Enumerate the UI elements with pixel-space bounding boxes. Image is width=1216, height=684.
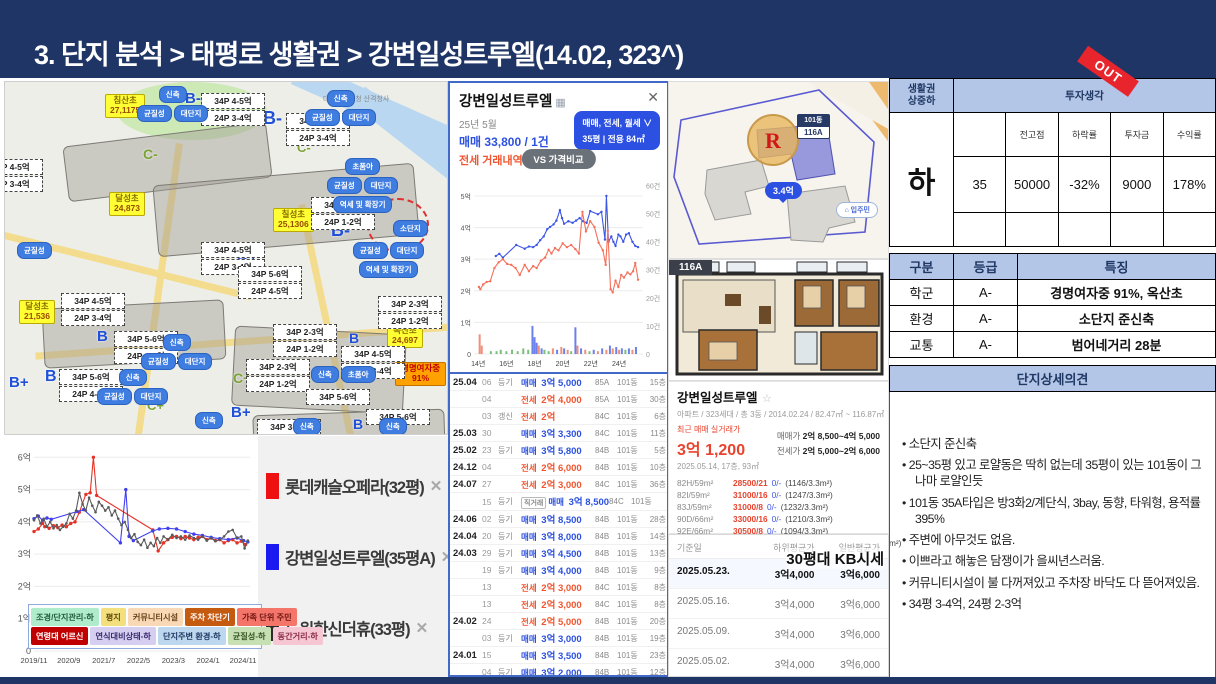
sale-range-value: 2억 8,500~4억 5,000 [803, 431, 880, 441]
zone-grade-letter: B [45, 368, 57, 386]
txn-day: 04 [482, 462, 498, 472]
jeonse-range-value: 2억 5,000~2억 6,000 [803, 446, 880, 456]
txn-badge: 등기 [498, 514, 521, 525]
txn-floor: 36층 [644, 479, 666, 490]
complex-tag-pill[interactable]: 균질성 [353, 242, 388, 259]
txn-day: 19 [482, 565, 498, 575]
txn-day: 30 [482, 428, 498, 438]
txn-type: 매매 [521, 515, 537, 525]
txn-price: 매매 3억 5,000 [521, 375, 595, 389]
school-value: 21,536 [24, 312, 50, 322]
svg-text:40건: 40건 [646, 238, 660, 247]
opinion-bullet: 34평 3-4억, 24평 2-3억 [902, 596, 1205, 612]
kb-date: 2025.05.23. [677, 566, 749, 581]
floor-plan: 116A [668, 259, 889, 381]
price-range-line: 34P 5-6억 [306, 389, 370, 405]
price-range-box: 34P 4-5억24P 3-4억 [4, 159, 43, 193]
txn-floor: 11층 [644, 428, 666, 439]
grade-column-header: 특징 [1018, 254, 1216, 280]
svg-text:2억: 2억 [461, 288, 471, 296]
txn-month: 24.03 [453, 548, 482, 559]
transaction-row[interactable]: 15등기직거래매매 3억 8,50084C101동7층 [450, 493, 669, 511]
price-app-panel: 강변일성트루엘▦ ✕ 25년 5월 매매 33,800 / 1건 전세 거래내역… [448, 81, 669, 677]
txn-building: 101동 [617, 428, 644, 439]
type-jeonse-price: 0/- [772, 489, 782, 501]
legend-label: 롯데캐슬오페라(32평) [285, 474, 424, 498]
complex-tag-pill[interactable]: 신축 [195, 412, 223, 429]
price-range-line: 24P 3-4억 [201, 110, 265, 126]
svg-text:2019/11: 2019/11 [21, 656, 48, 665]
complex-tag-pill[interactable]: 신축 [163, 334, 191, 351]
recent-trade-label: 최근 매매 실거래가 [677, 424, 759, 435]
home-icon: ⌂ [844, 207, 848, 214]
invest-empty-cell [1111, 213, 1163, 247]
txn-area-type: 84B [595, 634, 617, 643]
txn-type: 매매 [521, 549, 537, 559]
type-sale-price: 33000/16 [733, 513, 768, 525]
txn-price: 매매 3억 5,800 [521, 443, 595, 457]
price-history-chart: 01억2억3억4억5억010건20건30건40건50건60건14년16년18년2… [450, 169, 669, 372]
grade-row: 교통A-범어네거리 28분 [890, 332, 1216, 358]
price-range-line: 34P 4-5억 [341, 346, 405, 362]
txn-day: 06 [482, 377, 498, 387]
txn-badge: 갱신 [498, 411, 521, 422]
txn-type: 전세 [521, 583, 537, 593]
invest-empty-cell [1058, 213, 1110, 247]
tag-row: 신축 [305, 90, 376, 107]
txn-type: 매매 [521, 429, 537, 439]
complex-site-map: R 101동 116A 3.4억 ⌂ 입주민 [668, 81, 889, 259]
price-range-line: 24P 1-2억 [311, 214, 375, 230]
txn-building: 101동 [631, 496, 658, 507]
transaction-row[interactable]: 13전세 2억 3,00084C101동8층 [450, 596, 669, 613]
transaction-row[interactable]: 25.0406등기매매 3억 5,00085A101동15층 [450, 374, 669, 391]
transaction-row[interactable]: 03갱신전세 2억84C101동6층 [450, 408, 669, 425]
txn-price: 매매 3억 8,000 [521, 529, 595, 543]
type-jeonse-price: 0/- [772, 513, 782, 525]
complex-tag-pill[interactable]: 대단지 [390, 242, 425, 259]
tag-row: 신축 [293, 418, 321, 435]
attribute-tag: 균질성-하 [228, 627, 271, 645]
txn-day: 13 [482, 599, 498, 609]
txn-price: 직거래매매 3억 8,500 [521, 494, 609, 509]
invest-value: 9000 [1111, 157, 1163, 213]
txn-area-type: 84B [595, 515, 617, 524]
complex-tag-pill[interactable]: 역세 및 확장기 [333, 196, 393, 213]
txn-type: 전세 [521, 395, 537, 405]
kb-row: 2025.05.09.3억4,0003억6,000 [669, 619, 888, 649]
recent-trade-detail: 2025.05.14, 17층, 93㎡ [677, 461, 759, 472]
txn-badge: 등기 [498, 667, 521, 676]
txn-building: 101동 [617, 633, 644, 644]
price-range-line: 24P 1-2억 [273, 341, 337, 357]
txn-area-type: 84C [595, 429, 617, 438]
txn-type: 전세 [521, 463, 537, 473]
kb-row: 2025.05.16.3억4,0003억6,000 [669, 589, 888, 619]
type-label: 116A [797, 126, 830, 139]
svg-text:2020/9: 2020/9 [57, 656, 80, 665]
opinion-bullet: 101동 35A타입은 방3화2/계단식, 3bay, 동향, 타워형, 용적률… [902, 495, 1205, 527]
price-range-box: 34P 4-5억24P 3-4억 [61, 293, 125, 327]
transaction-row[interactable]: 24.0224전세 2억 5,00084B101동20층 [450, 613, 669, 630]
grade-feature: 범어네거리 28분 [1018, 332, 1216, 358]
complex-tag-group: 초품아균질성대단지역세 및 확장기 [327, 158, 398, 215]
txn-day: 27 [482, 479, 498, 489]
invest-col-header [954, 113, 1006, 157]
tag-row: 연령대 어르신연식대비상태-하단지주변 환경-하균질성-하동간거리-하 [31, 627, 259, 645]
txn-floor: 19층 [644, 633, 666, 644]
attribute-tag: 단지주변 환경-하 [158, 627, 226, 645]
svg-text:20년: 20년 [556, 359, 570, 368]
type-name: 90D/66m² [677, 513, 729, 525]
txn-floor: 8층 [644, 599, 666, 610]
price-range-box: 34P 4-5억24P 3-4억 [201, 93, 265, 127]
txn-price: 전세 2억 6,000 [521, 460, 595, 474]
txn-day: 03 [482, 411, 498, 421]
title-bar: 3. 단지 분석 > 태평로 생활권 > 강변일성트루엘(14.02, 323^… [0, 0, 1216, 78]
txn-type: 전세 [521, 412, 537, 422]
invest-empty-cell [954, 213, 1006, 247]
remove-series-icon[interactable]: ✕ [416, 619, 429, 637]
complex-tag-pill[interactable]: 소단지 [393, 220, 428, 237]
opinion-bullet: 커뮤니티시설이 불 다꺼져있고 주차장 바닥도 다 뜯어져있음. [902, 575, 1205, 591]
grade-feature: 경명여자중 91%, 옥산초 [1018, 280, 1216, 306]
tag-row: 신축초품아 [311, 366, 376, 383]
complex-tag-pill[interactable]: 균질성 [141, 353, 176, 370]
complex-title: 강변일성트루엘 [459, 94, 552, 110]
txn-month: 24.04 [453, 531, 482, 542]
txn-type: 매매 [521, 532, 537, 542]
svg-text:4억: 4억 [18, 516, 31, 527]
kb-row: 2025.05.02.3억4,0003억6,000 [669, 649, 888, 679]
txn-building: 101동 [617, 650, 644, 661]
svg-text:2억: 2억 [18, 580, 31, 591]
transaction-row[interactable]: 03등기매매 3억 3,00084B101동19층 [450, 630, 669, 647]
price-range-line: 24P 1-2억 [378, 313, 442, 329]
invest-col-header: 전고점 [1006, 113, 1058, 157]
price-range-line: 34P 2-3억 [378, 296, 442, 312]
invest-col-header: 투자금 [1111, 113, 1163, 157]
txn-day: 15 [482, 497, 498, 507]
txn-floor: 5층 [644, 445, 666, 456]
complex-tag-pill[interactable]: 균질성 [305, 109, 340, 126]
transaction-row[interactable]: 25.0330매매 3억 3,30084C101동11층 [450, 425, 669, 442]
complex-tag-pill[interactable]: 대단지 [174, 105, 209, 122]
area-map: 침산초27,1175달성초24,873칠성초25,1306달성초21,536옥산… [4, 81, 448, 435]
transaction-row[interactable]: 24.0602등기매매 3억 8,50084B101동28층 [450, 511, 669, 528]
kb-date: 2025.05.02. [677, 656, 749, 671]
txn-badge: 등기 [498, 531, 521, 542]
invest-col-header: 하락률 [1058, 113, 1110, 157]
school-price-marker[interactable]: 달성초24,873 [109, 192, 145, 216]
txn-price: 전세 2억 3,000 [521, 580, 595, 594]
compare-chart: 01억2억3억4억5억6억2019/112020/92021/72022/520… [4, 436, 258, 677]
star-icon[interactable]: ☆ [762, 393, 772, 405]
school-value: 27,1175 [110, 106, 140, 116]
complex-tag-group: 신축 [293, 418, 321, 435]
price-range-box: 34P 5-6억24P 4-5억 [238, 266, 302, 300]
txn-type: 매매 [521, 651, 537, 661]
opinion-box: 소단지 준신축25~35평 있고 로얄동은 딱히 없는데 35평이 있는 101… [889, 392, 1216, 678]
resident-pill: ⌂ 입주민 [836, 202, 878, 218]
legend-swatch [266, 544, 279, 570]
complex-tag-pill[interactable]: 신축 [379, 418, 407, 435]
txn-area-type: 85A [595, 378, 617, 387]
complex-tag-pill[interactable]: 역세 및 확장기 [359, 261, 419, 278]
txn-price: 매매 3억 4,500 [521, 546, 595, 560]
svg-text:3억: 3억 [18, 548, 31, 559]
floor-plan-drawing [669, 260, 889, 381]
svg-text:30건: 30건 [646, 266, 660, 275]
txn-day: 04 [482, 667, 498, 675]
complex-tag-pill[interactable]: 초품아 [345, 158, 380, 175]
txn-building: 101동 [617, 445, 644, 456]
complex-tag-pill[interactable]: 신축 [293, 418, 321, 435]
txn-building: 101동 [617, 531, 644, 542]
listing-info: 강변일성트루엘 ☆ 아파트 / 323세대 / 총 3동 / 2014.02.2… [668, 381, 889, 534]
txn-day: 04 [482, 394, 498, 404]
zone-grade-letter: B- [263, 108, 282, 129]
zone-grade-letter: B+ [231, 404, 251, 421]
price-range-line: 34P 4-5억 [201, 93, 265, 109]
complex-tag-pill[interactable]: 대단지 [342, 109, 377, 126]
transaction-row[interactable]: 13전세 2억 3,00084C101동8층 [450, 579, 669, 596]
svg-text:60건: 60건 [646, 181, 660, 190]
txn-price: 매매 3억 3,000 [521, 631, 595, 645]
transaction-row[interactable]: 24.0727전세 2억 3,00084C101동36층 [450, 476, 669, 493]
txn-badge: 등기 [498, 377, 521, 388]
txn-badge: 등기 [498, 548, 521, 559]
txn-month: 24.06 [453, 514, 482, 525]
price-range-line: 24P 4-5억 [238, 283, 302, 299]
school-value: 91% [401, 374, 440, 384]
attribute-tag: 주차 차단기 [185, 608, 235, 626]
type-price-row: 82I/59m²31000/160/-(1247/3.3m²) [677, 489, 880, 501]
price-range-box: 34P 5-6억 [306, 389, 370, 406]
svg-text:2023/3: 2023/3 [162, 656, 185, 665]
txn-area-type: 84B [595, 532, 617, 541]
txn-day: 02 [482, 514, 498, 524]
svg-text:2024/11: 2024/11 [230, 656, 257, 665]
filter-size: 35평 | 전용 84㎡ [582, 132, 652, 145]
txn-area-type: 84C [609, 497, 631, 506]
txn-day: 23 [482, 445, 498, 455]
svg-text:0: 0 [467, 352, 471, 359]
complex-tag-pill[interactable]: 균질성 [137, 105, 172, 122]
txn-month: 25.04 [453, 377, 482, 388]
transaction-row[interactable]: 24.0329등기매매 3억 4,50084B101동13층 [450, 545, 669, 562]
tag-row: 역세 및 확장기 [353, 261, 424, 278]
txn-month: 24.07 [453, 479, 482, 490]
tag-row: 조경/단지관리-하평지커뮤니티시설주차 차단기가족 단위 주민 [31, 608, 259, 626]
type-price-row: 83J/59m²31000/80/-(1232/3.3m²) [677, 501, 880, 513]
price-history-plot: 01억2억3억4억5억010건20건30건40건50건60건14년16년18년2… [450, 169, 669, 372]
svg-text:5억: 5억 [461, 193, 471, 201]
price-range-line: 34P 4-5억 [61, 293, 125, 309]
txn-building: 101동 [617, 667, 644, 676]
investment-header: 투자생각 [954, 79, 1216, 113]
txn-building: 101동 [617, 479, 644, 490]
invest-value: -32% [1058, 157, 1110, 213]
txn-type: 전세 [521, 480, 537, 490]
complex-tag-group: 신축 [195, 412, 223, 431]
complex-tag-group: 신축균질성대단지 [137, 86, 208, 124]
complex-tag-pill[interactable]: 대단지 [178, 353, 213, 370]
complex-tag-pill[interactable]: 균질성 [97, 388, 132, 405]
recent-trade: 최근 매매 실거래가 3억 1,200 2025.05.14, 17층, 93㎡ [677, 424, 759, 472]
svg-text:2024/1: 2024/1 [196, 656, 219, 665]
grade-row: 학군A-경명여자중 91%, 옥산초 [890, 280, 1216, 306]
txn-floor: 30층 [644, 394, 666, 405]
transaction-row[interactable]: 24.0115매매 3억 3,50084B101동23층 [450, 647, 669, 664]
transaction-row[interactable]: 19등기매매 3억 4,00084B101동9층 [450, 562, 669, 579]
remove-series-icon[interactable]: ✕ [430, 477, 443, 495]
txn-floor: 14층 [644, 531, 666, 542]
txn-price: 매매 3억 3,500 [521, 648, 595, 662]
page-title: 3. 단지 분석 > 태평로 생활권 > 강변일성트루엘(14.02, 323^… [34, 33, 683, 72]
complex-tag-pill[interactable]: 신축 [119, 369, 147, 386]
price-range-line: 34P 2-3억 [273, 324, 337, 340]
type-name: 82I/59m² [677, 489, 729, 501]
invest-empty-cell [1163, 213, 1215, 247]
tag-row: 균질성대단지 [353, 242, 424, 259]
zone-grade-letter: B [349, 330, 359, 346]
filter-button[interactable]: 매매, 전세, 월세 ∨ 35평 | 전용 84㎡ [574, 111, 660, 150]
invest-value: 50000 [1006, 157, 1058, 213]
tag-row: 신축 [137, 86, 208, 103]
school-price-marker[interactable]: 달성초21,536 [19, 300, 55, 324]
svg-text:22년: 22년 [584, 359, 598, 368]
complex-tag-group: 소단지 [393, 220, 428, 239]
kb-table-title: 30평대 KB시세 [786, 548, 884, 569]
kb-price: 3억4,000 [749, 596, 815, 611]
complex-tag-pill[interactable]: 균질성 [327, 177, 362, 194]
bottom-accent-bar [0, 677, 1216, 684]
transaction-row[interactable]: 25.0223등기매매 3억 5,80084B101동5층 [450, 442, 669, 459]
txn-badge: 등기 [498, 496, 521, 507]
txn-price: 매매 3억 4,000 [521, 563, 595, 577]
txn-building: 101동 [617, 411, 644, 422]
kb-price: 3억4,000 [749, 656, 815, 671]
tag-row: 신축 [379, 418, 407, 435]
txn-type: 매매 [521, 566, 537, 576]
transaction-row[interactable]: 04전세 2억 4,00085A101동30층 [450, 391, 669, 408]
jeonse-range-label: 전세가 [777, 446, 800, 456]
txn-type: 매매 [548, 497, 564, 507]
complex-tag-group: 신축균질성대단지 [141, 334, 212, 372]
txn-type: 전세 [521, 617, 537, 627]
type-price-row: 82H/59m²28500/210/-(1146/3.3m²) [677, 477, 880, 489]
opinion-bullet: 이쁘라고 해놓은 담쟁이가 을씨년스러움. [902, 553, 1205, 569]
zone-grade-value: 하 [890, 113, 954, 247]
legend-swatch [266, 473, 279, 499]
dong-label: 101동 [797, 114, 830, 126]
attribute-tag: 연식대비상태-하 [90, 627, 155, 645]
tag-row: 신축 [97, 369, 168, 386]
txn-price: 매매 3억 3,300 [521, 426, 595, 440]
svg-text:14년: 14년 [471, 359, 485, 368]
type-unit-price: (1146/3.3m²) [785, 477, 832, 489]
kb-date: 2025.05.16. [677, 596, 749, 611]
type-price-row: 90D/66m²33000/160/-(1210/3.3m²) [677, 513, 880, 525]
complex-tag-group: 신축초품아 [311, 366, 376, 385]
txn-floor: 20층 [644, 616, 666, 627]
attribute-tag: 조경/단지관리-하 [31, 608, 99, 626]
complex-tag-pill[interactable]: 대단지 [134, 388, 169, 405]
txn-area-type: 84C [595, 412, 617, 421]
close-icon[interactable]: ✕ [647, 89, 659, 106]
type-sale-price: 31000/16 [733, 489, 768, 501]
analysis-column: OUT 생활권상중하 투자생각 하 전고점하락률투자금수익률 3550000-3… [889, 78, 1216, 678]
zone-grade-letter: C- [143, 146, 158, 162]
invest-value: 178% [1163, 157, 1215, 213]
complex-tag-group: 균질성대단지역세 및 확장기 [353, 242, 424, 280]
price-range-box: 34P 2-3억24P 1-2억 [378, 296, 442, 330]
txn-area-type: 84B [595, 617, 617, 626]
grade-score: A- [954, 332, 1018, 358]
transaction-row[interactable]: 24.1204전세 2억 6,00084B101동10층 [450, 459, 669, 476]
school-value: 25,1306 [278, 220, 309, 230]
txn-area-type: 84B [595, 566, 617, 575]
grade-score: A- [954, 306, 1018, 332]
type-unit-price: (1247/3.3m²) [785, 489, 833, 501]
complex-tag-pill[interactable]: 초품아 [341, 366, 376, 383]
grade-row: 환경A-소단지 준신축 [890, 306, 1216, 332]
complex-tag-group: 신축균질성대단지 [97, 369, 168, 407]
svg-text:6억: 6억 [18, 451, 31, 462]
tag-row: 균질성 [17, 242, 52, 259]
complex-tag-pill[interactable]: 대단지 [364, 177, 399, 194]
tag-row: 소단지 [393, 220, 428, 237]
floor-plan-type-label: 116A [669, 260, 712, 275]
complex-tag-pill[interactable]: 신축 [311, 366, 339, 383]
price-range-line: 34P 2-3억 [246, 359, 310, 375]
grade-table: 구분등급특징 학군A-경명여자중 91%, 옥산초환경A-소단지 준신축교통A-… [889, 253, 1216, 358]
zone-grade-corner: 생활권상중하 [890, 79, 954, 113]
txn-badge: 등기 [498, 565, 521, 576]
tag-row: 균질성대단지 [97, 388, 168, 405]
transaction-row[interactable]: 04등기매매 3억 2,00084B101동12층 [450, 664, 669, 675]
school-price-marker[interactable]: 칠성초25,1306 [273, 208, 314, 232]
txn-floor: 23층 [644, 650, 666, 661]
txn-floor: 10층 [644, 462, 666, 473]
tag-row: 균질성대단지 [305, 109, 376, 126]
price-range-box: 34P 2-3억24P 1-2억 [246, 359, 310, 393]
txn-building: 101동 [617, 582, 644, 593]
r-marker: R [747, 114, 799, 166]
txn-type: 매매 [521, 446, 537, 456]
grade-category: 환경 [890, 306, 954, 332]
price-range-line: 24P 3-4억 [286, 130, 350, 146]
txn-area-type: 84B [595, 651, 617, 660]
price-range-line: 34P 4-5억 [201, 242, 265, 258]
transaction-row[interactable]: 24.0420등기매매 3억 8,00084B101동14층 [450, 528, 669, 545]
slide: 3. 단지 분석 > 태평로 생활권 > 강변일성트루엘(14.02, 323^… [0, 0, 1216, 684]
txn-building: 101동 [617, 616, 644, 627]
attribute-tag: 커뮤니티시설 [128, 608, 183, 626]
complex-tag-pill[interactable]: 균질성 [17, 242, 52, 259]
txn-month: 24.01 [453, 650, 482, 661]
txn-type: 매매 [521, 378, 537, 388]
svg-text:0: 0 [646, 352, 650, 359]
kb-price: 3억6,000 [815, 596, 881, 611]
complex-tag-pill[interactable]: 신축 [327, 90, 355, 107]
txn-area-type: 84B [595, 549, 617, 558]
vs-compare-button[interactable]: VS 가격비교 [521, 149, 595, 169]
complex-tag-pill[interactable]: 신축 [159, 86, 187, 103]
txn-building: 101동 [617, 377, 644, 388]
txn-area-type: 84B [595, 463, 617, 472]
